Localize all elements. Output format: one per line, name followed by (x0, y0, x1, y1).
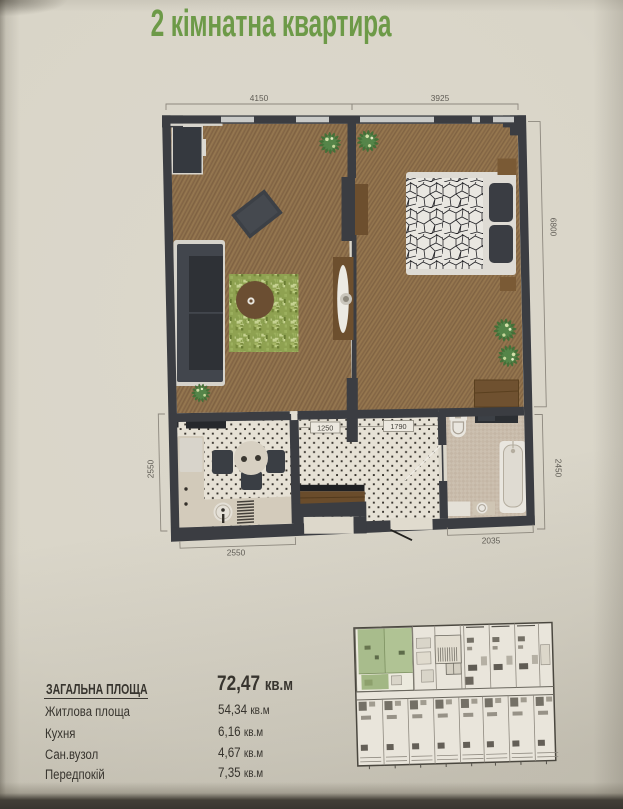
svg-text:2450: 2450 (554, 459, 564, 478)
svg-text:3925: 3925 (431, 93, 450, 103)
svg-text:2550: 2550 (227, 548, 246, 558)
svg-text:2550: 2550 (146, 459, 156, 478)
svg-text:4150: 4150 (250, 93, 269, 103)
svg-text:1790: 1790 (390, 422, 406, 431)
svg-text:1250: 1250 (317, 423, 333, 432)
svg-text:6800: 6800 (549, 218, 559, 237)
svg-text:2035: 2035 (482, 536, 501, 546)
